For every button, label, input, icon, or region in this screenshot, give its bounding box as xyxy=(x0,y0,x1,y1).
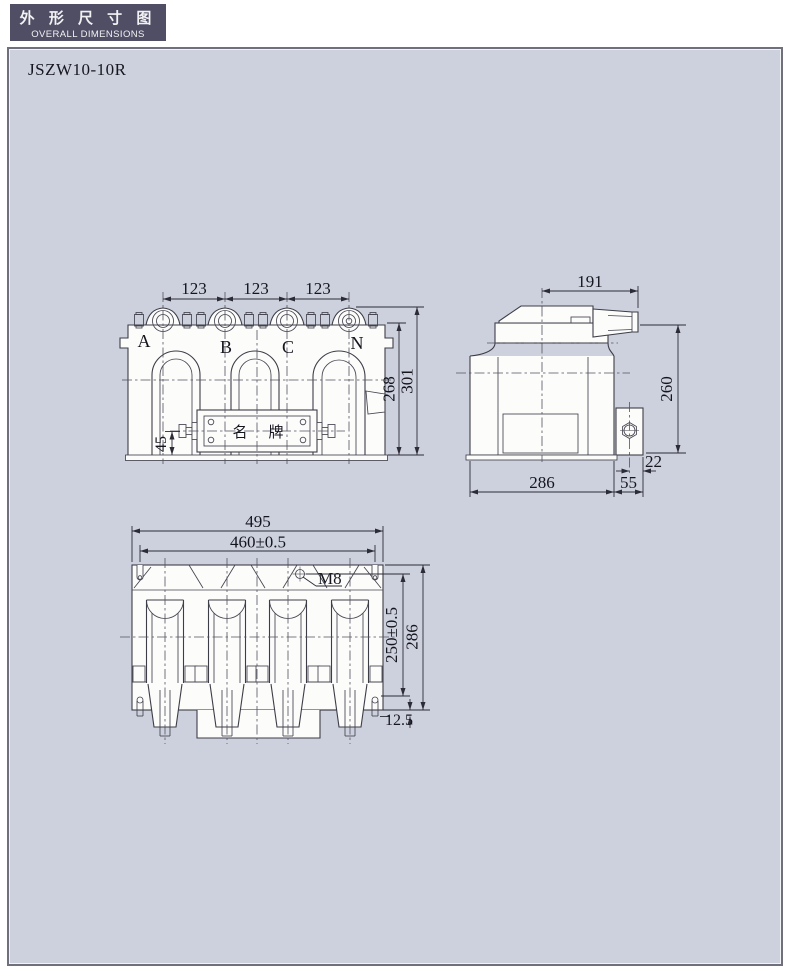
dim-123-1: 123 xyxy=(181,279,207,298)
svg-text:55: 55 xyxy=(620,473,637,492)
side-terminal-stub xyxy=(593,309,638,337)
svg-text:286: 286 xyxy=(529,473,555,492)
dim-12-5: 12.5 xyxy=(380,699,415,729)
side-collar xyxy=(495,323,608,343)
dim-123-3: 123 xyxy=(305,279,331,298)
dim-286-side: 286 xyxy=(470,457,643,497)
terminal-label-b: B xyxy=(220,337,232,357)
svg-text:286: 286 xyxy=(403,624,422,650)
terminal-label-a: A xyxy=(138,331,151,351)
front-base xyxy=(126,455,388,461)
thread-label: M8 xyxy=(318,569,342,588)
side-shoulder-right xyxy=(608,343,614,356)
svg-text:191: 191 xyxy=(577,272,603,291)
nameplate-text-left: 名 xyxy=(232,424,247,441)
svg-text:260: 260 xyxy=(657,376,676,402)
svg-text:12.5: 12.5 xyxy=(385,712,413,729)
svg-text:460±0.5: 460±0.5 xyxy=(230,533,286,552)
dim-260: 260 xyxy=(640,325,686,453)
side-head xyxy=(499,306,593,323)
dim-301: 301 xyxy=(398,368,417,394)
terminal-label-c: C xyxy=(282,337,294,357)
dim-terminal-pitch: 123 123 123 xyxy=(163,279,349,299)
dim-460: 460±0.5 xyxy=(140,533,375,563)
page: { "badge": { "title_cn": "外 形 尺 寸 图", "t… xyxy=(0,0,790,973)
nameplate-text-right: 牌 xyxy=(268,424,283,441)
side-shoulder-left xyxy=(470,343,495,356)
side-base xyxy=(466,455,617,460)
dim-55: 55 xyxy=(614,473,643,492)
technical-drawing: 名 牌 A B C N 123 123 123 268 301 xyxy=(0,0,790,973)
dim-123-2: 123 xyxy=(243,279,269,298)
dim-191: 191 xyxy=(542,272,638,308)
svg-text:495: 495 xyxy=(245,512,271,531)
svg-text:22: 22 xyxy=(645,452,662,471)
side-view: 191 260 286 55 22 xyxy=(456,272,686,497)
front-view: 名 牌 A B C N 123 123 123 268 301 xyxy=(120,279,424,464)
terminal-label-n: N xyxy=(351,333,364,353)
svg-text:250±0.5: 250±0.5 xyxy=(382,607,401,663)
bottom-view: M8 495 460±0.5 286 xyxy=(120,512,430,744)
dim-45: 45 xyxy=(153,436,170,452)
dim-268: 268 xyxy=(380,376,399,402)
